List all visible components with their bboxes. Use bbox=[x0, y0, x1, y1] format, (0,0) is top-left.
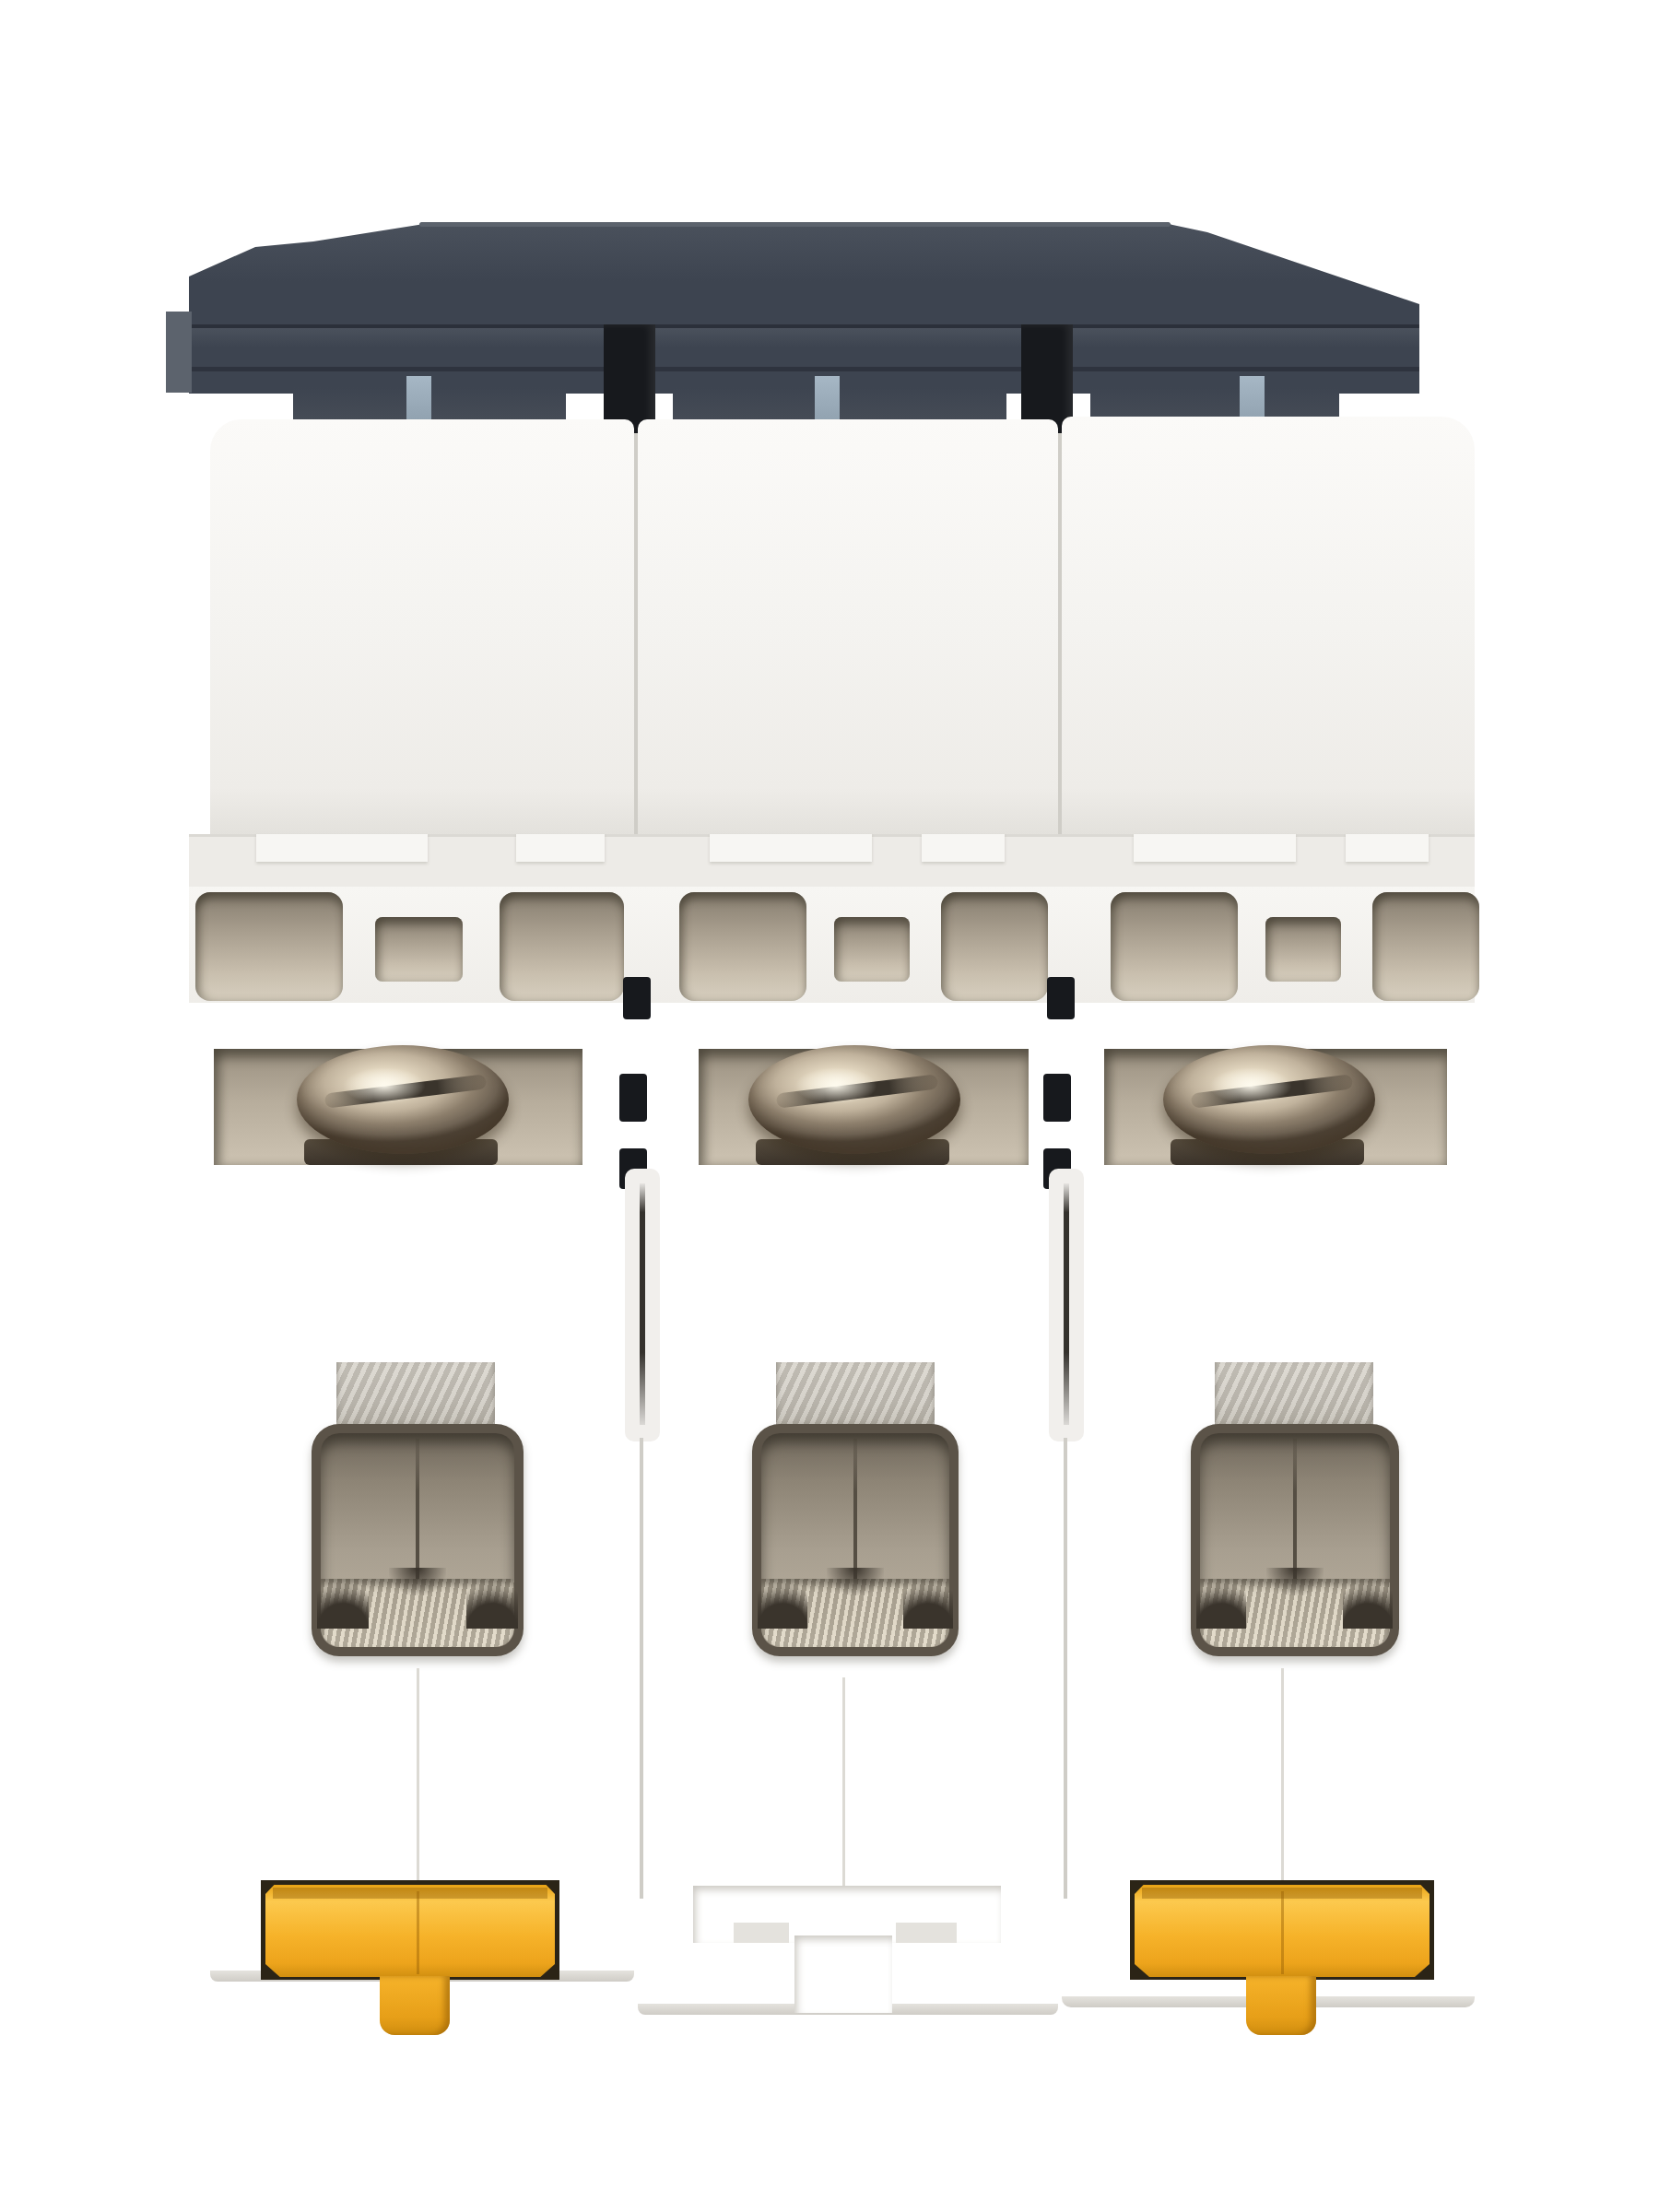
din-slot-step-right-pole2 bbox=[896, 1923, 957, 1943]
module-seam-lower-1 bbox=[640, 1438, 643, 1899]
vent-pole1-center bbox=[375, 917, 463, 982]
ledge-tab-pole2-a bbox=[710, 834, 872, 862]
latch-tab-pole1 bbox=[406, 376, 431, 424]
clamp-tab-pole1 bbox=[336, 1362, 495, 1430]
housing-left-step bbox=[166, 312, 192, 393]
screw-gleam-pole3 bbox=[1209, 1067, 1292, 1104]
mold-line-pole2 bbox=[842, 1677, 845, 1886]
ledge-tab-pole1-b bbox=[516, 834, 605, 862]
din-clip-pole1 bbox=[265, 1885, 555, 1977]
seam-slit-2 bbox=[1064, 1183, 1069, 1425]
boundary-slot-2b bbox=[1043, 1074, 1071, 1122]
screw-gleam-pole1 bbox=[343, 1067, 426, 1104]
clamp-arc-right-pole1 bbox=[466, 1571, 518, 1629]
module-seam-lower-2 bbox=[1064, 1438, 1067, 1899]
boundary-slot-1a bbox=[623, 977, 651, 1019]
latch-tab-pole2 bbox=[815, 376, 840, 426]
terminal-window-pole1 bbox=[312, 1424, 524, 1656]
module-seam-upper-2 bbox=[1058, 433, 1062, 839]
vent-pole3-left bbox=[1111, 892, 1238, 1001]
mold-line-pole3 bbox=[1281, 1668, 1284, 1888]
din-slot-stem-pole2 bbox=[794, 1935, 892, 2013]
vent-pole2-right bbox=[941, 892, 1048, 1001]
clamp-arc-left-pole1 bbox=[317, 1571, 369, 1629]
ledge-tab-pole3-a bbox=[1134, 834, 1296, 862]
clamp-dip-pole3 bbox=[1266, 1568, 1324, 1595]
housing-groove-lower bbox=[189, 367, 1419, 371]
clamp-dip-pole2 bbox=[827, 1568, 884, 1595]
vent-pole1-right bbox=[500, 892, 624, 1001]
vent-pole2-left bbox=[679, 892, 806, 1001]
clamp-dip-pole1 bbox=[389, 1568, 446, 1595]
vent-pole3-right bbox=[1372, 892, 1479, 1001]
vent-pole2-center bbox=[834, 917, 910, 982]
vent-pole3-center bbox=[1265, 917, 1341, 982]
clamp-tab-pole2 bbox=[776, 1362, 935, 1430]
clamp-tab-pole3 bbox=[1215, 1362, 1373, 1430]
clip-crease-pole1 bbox=[417, 1891, 419, 1974]
mold-line-pole1 bbox=[417, 1668, 419, 1888]
clamp-arc-left-pole3 bbox=[1196, 1571, 1246, 1629]
ledge-tab-pole1-a bbox=[256, 834, 428, 862]
housing-top-roof bbox=[189, 219, 1424, 332]
clip-release-tab-pole3 bbox=[1246, 1976, 1316, 2035]
clip-lip-pole1 bbox=[273, 1888, 547, 1899]
terminal-window-pole3 bbox=[1191, 1424, 1399, 1656]
clip-release-tab-pole1 bbox=[380, 1976, 450, 2035]
seam-slit-1 bbox=[640, 1183, 645, 1425]
clamp-arc-left-pole2 bbox=[758, 1571, 807, 1629]
ledge-tab-pole3-b bbox=[1346, 834, 1429, 862]
boundary-slot-1b bbox=[619, 1074, 647, 1122]
photo-stage bbox=[0, 0, 1659, 2212]
vent-pole1-left bbox=[195, 892, 343, 1001]
housing-top-rim bbox=[419, 222, 1171, 227]
terminal-window-pole2 bbox=[752, 1424, 959, 1656]
clip-crease-pole3 bbox=[1281, 1891, 1284, 1974]
module-body-pole3 bbox=[1062, 417, 1475, 839]
module-seam-upper-1 bbox=[634, 433, 638, 839]
clamp-arc-right-pole3 bbox=[1343, 1571, 1393, 1629]
din-slot-step-left-pole2 bbox=[734, 1923, 789, 1943]
screw-gleam-pole2 bbox=[794, 1067, 877, 1104]
module-body-pole1 bbox=[210, 419, 634, 839]
ledge-tab-pole2-b bbox=[922, 834, 1005, 862]
boundary-slot-2a bbox=[1047, 977, 1075, 1019]
housing-groove-upper bbox=[189, 324, 1419, 328]
housing-top-band bbox=[189, 327, 1419, 394]
module-body-pole2 bbox=[638, 419, 1058, 839]
clamp-arc-right-pole2 bbox=[903, 1571, 953, 1629]
